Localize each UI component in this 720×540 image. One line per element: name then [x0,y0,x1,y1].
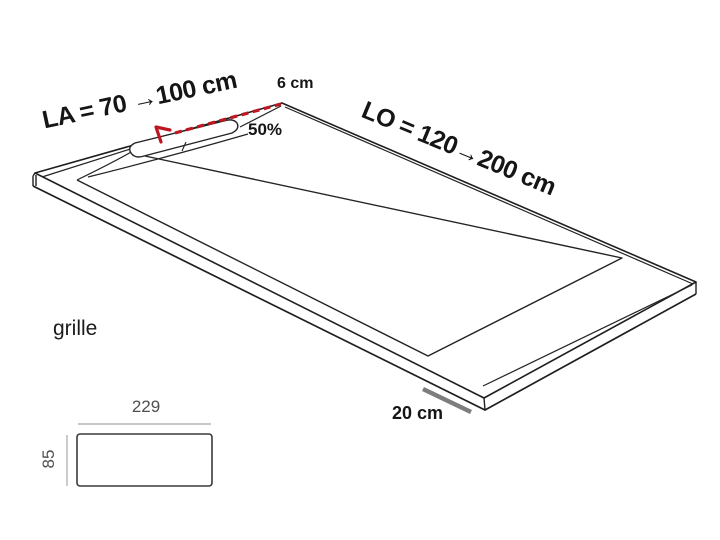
drain-width-label: 6 cm [277,76,313,93]
drain-offset-label: 20 cm [392,404,443,423]
slope-percent-label: 50% [248,121,282,139]
shower-tray-diagram: LA = 70 →100 cm LO = 120→200 cm 6 cm 50%… [0,0,720,540]
grille-height-dimension: 85 [40,441,60,477]
grille-plan-rect [77,434,212,486]
shower-tray-drawing [0,0,720,540]
grille-width-dimension: 229 [128,398,164,416]
grille-caption: grille [53,318,97,340]
